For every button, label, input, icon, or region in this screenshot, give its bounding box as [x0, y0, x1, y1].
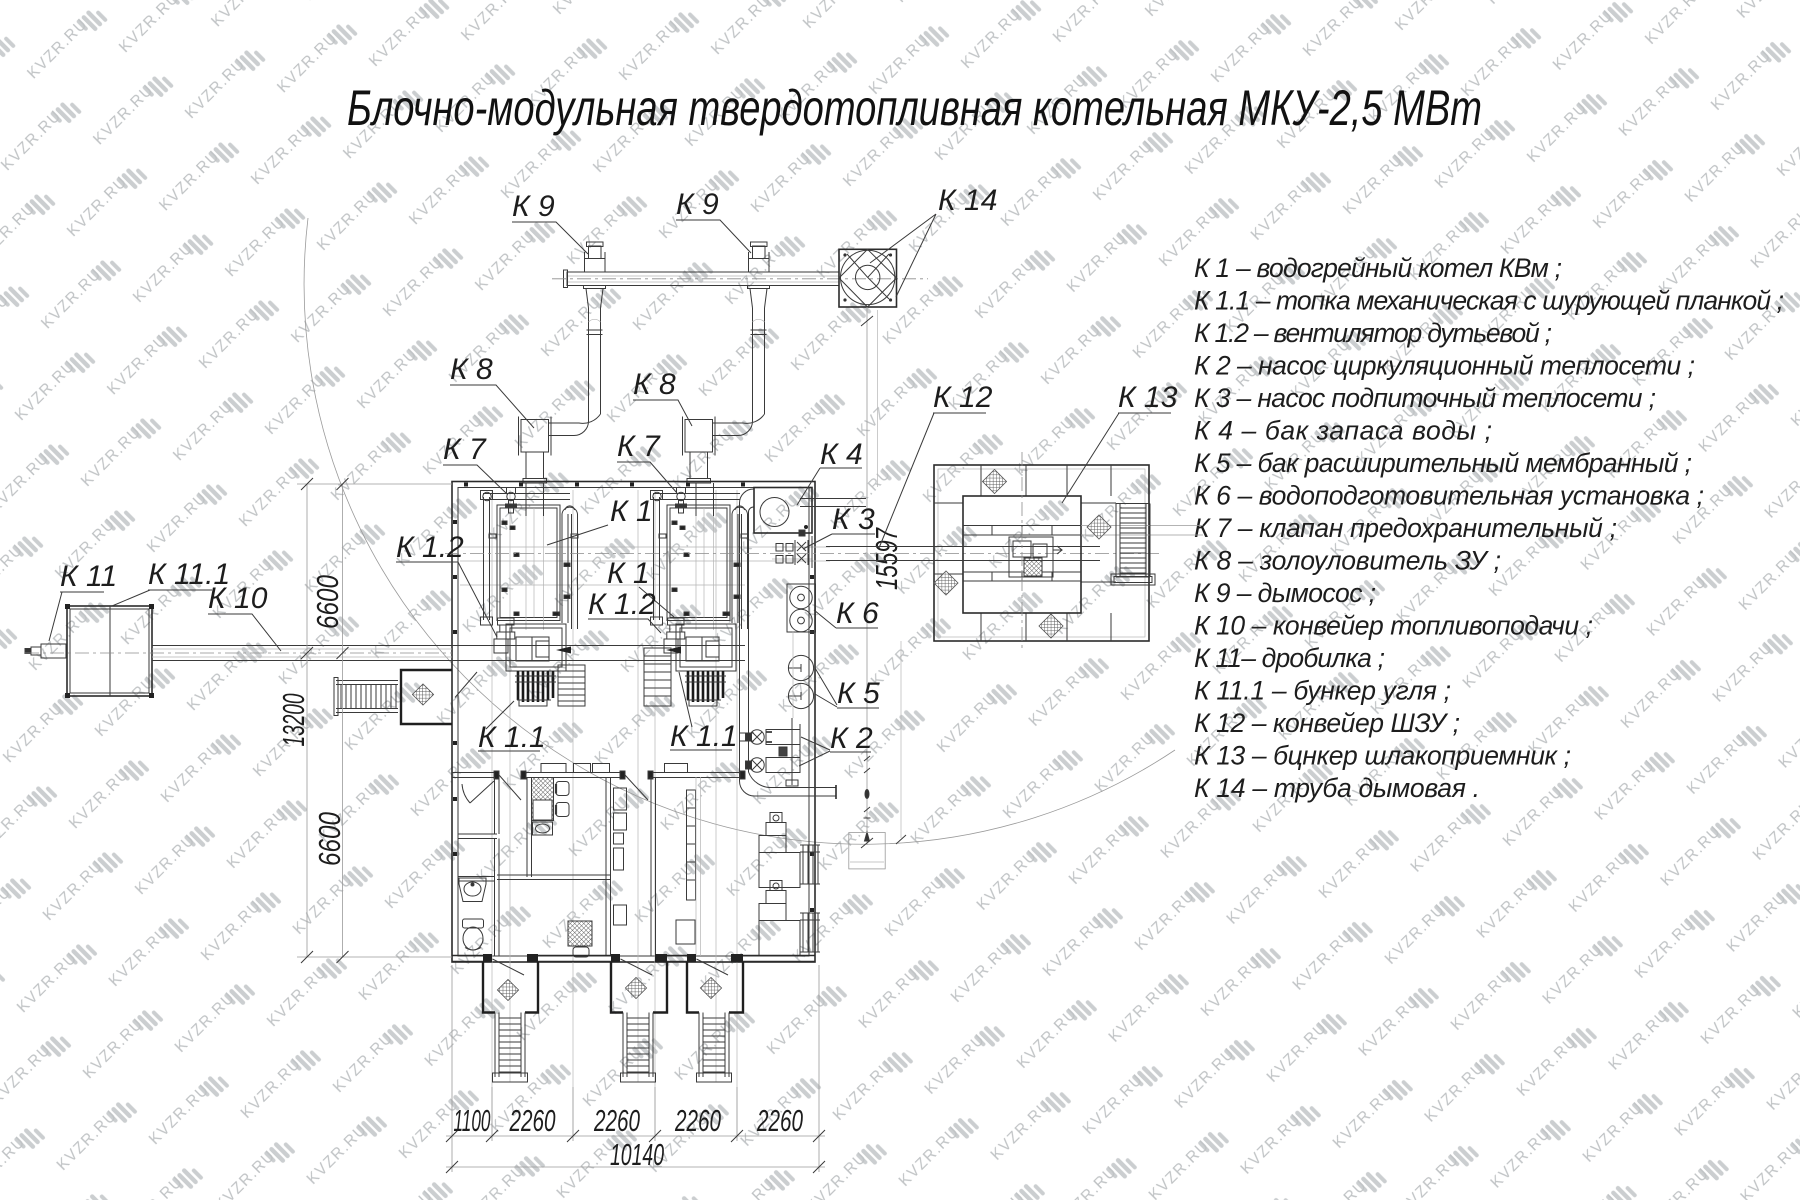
svg-text:10140: 10140 [610, 1137, 664, 1172]
svg-text:К 1: К 1 [607, 557, 650, 590]
svg-text:К 7: К 7 [617, 430, 661, 463]
svg-text:К 1 – водогрейный котел КВм: К 1 – водогрейный котел КВм ; [1194, 253, 1562, 283]
svg-text:6600: 6600 [312, 812, 347, 866]
svg-text:К 1.1: К 1.1 [478, 721, 546, 754]
svg-text:К 8 – золоуловитель ЗУ ;: К 8 – золоуловитель ЗУ ; [1194, 546, 1501, 576]
svg-text:2260: 2260 [593, 1103, 640, 1138]
svg-text:6600: 6600 [310, 575, 345, 629]
svg-text:К 6: К 6 [836, 597, 879, 630]
svg-text:К 8: К 8 [633, 368, 676, 401]
svg-text:К 7 – клапан предохранитель: К 7 – клапан предохранительный ; [1194, 513, 1617, 543]
svg-text:К 13 – бцнкер шлакоприемник: К 13 – бцнкер шлакоприемник ; [1194, 741, 1571, 771]
svg-text:К 1.2 – вентилятор дутьевой: К 1.2 – вентилятор дутьевой ; [1194, 318, 1552, 348]
svg-text:К 11.1 – бункер угля ;: К 11.1 – бункер угля ; [1194, 676, 1451, 706]
svg-text:К 1.2: К 1.2 [588, 588, 656, 621]
svg-text:К 1.1 – топка механическая: К 1.1 – топка механическая с шурующей пл… [1194, 286, 1784, 316]
svg-text:К 12: К 12 [933, 381, 993, 414]
svg-text:К 3: К 3 [832, 503, 875, 536]
svg-text:К 12 – конвейер ШЗУ ;: К 12 – конвейер ШЗУ ; [1194, 708, 1460, 738]
svg-text:К 2: К 2 [830, 722, 873, 755]
svg-text:К 11: К 11 [60, 560, 117, 593]
svg-text:К 4: К 4 [820, 438, 863, 471]
svg-text:К 14 – труба дымовая .: К 14 – труба дымовая . [1194, 773, 1480, 803]
svg-text:2260: 2260 [674, 1103, 721, 1138]
svg-text:К 5 – бак расширительный ме: К 5 – бак расширительный мембранный ; [1194, 448, 1692, 478]
svg-text:15597: 15597 [869, 527, 904, 590]
svg-text:1100: 1100 [454, 1103, 491, 1138]
svg-text:К 13: К 13 [1118, 381, 1178, 414]
svg-text:К 14: К 14 [938, 184, 997, 217]
svg-text:К 11– дробилка ;: К 11– дробилка ; [1194, 643, 1385, 673]
svg-text:К 8: К 8 [450, 353, 493, 386]
svg-text:К 3 – насос подпиточный теп: К 3 – насос подпиточный теплосети ; [1194, 383, 1656, 413]
svg-text:2260: 2260 [756, 1103, 803, 1138]
svg-text:13200: 13200 [276, 694, 311, 747]
svg-text:Блочно-модульная твердотопливн: Блочно-модульная твердотопливная котельн… [347, 80, 1482, 136]
svg-text:К 9 – дымосос ;: К 9 – дымосос ; [1194, 578, 1376, 608]
svg-text:К 11.1: К 11.1 [148, 558, 230, 591]
svg-text:К 1.1: К 1.1 [670, 720, 738, 753]
svg-text:К 9: К 9 [676, 188, 719, 221]
svg-text:К 1.2: К 1.2 [396, 531, 464, 564]
svg-text:2260: 2260 [509, 1103, 556, 1138]
svg-text:К 9: К 9 [512, 190, 555, 223]
svg-text:К 2 – насос циркуляционный: К 2 – насос циркуляционный теплосети ; [1194, 351, 1695, 381]
svg-text:К 1: К 1 [610, 495, 653, 528]
svg-text:К 6 – водоподготовительная: К 6 – водоподготовительная установка ; [1194, 481, 1704, 511]
svg-text:К 5: К 5 [837, 677, 880, 710]
svg-text:К 7: К 7 [443, 433, 487, 466]
svg-text:К 4 – бак запаса воды ;: К 4 – бак запаса воды ; [1194, 416, 1492, 446]
svg-text:К 10 – конвейер топливопода: К 10 – конвейер топливоподачи ; [1194, 611, 1593, 641]
